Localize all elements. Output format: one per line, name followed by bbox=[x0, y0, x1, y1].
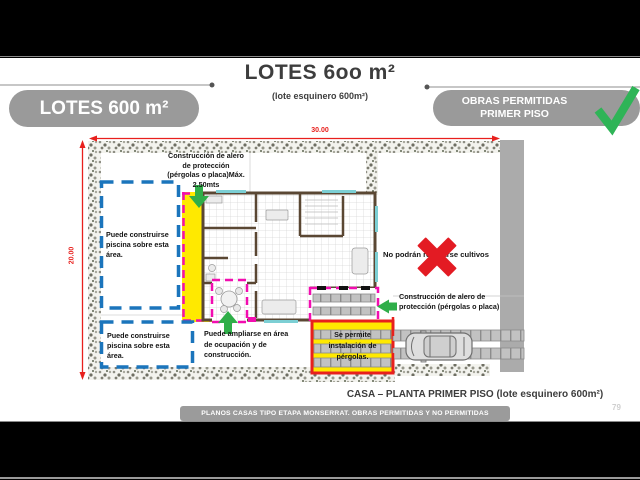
obras-permitidas-badge: OBRAS PERMITIDAS PRIMER PISO bbox=[433, 90, 640, 126]
dimension-height-label: 20.00 bbox=[69, 236, 76, 276]
dimension-width-label: 30.00 bbox=[295, 127, 345, 134]
annotation-alero-top: Construcción de alero de protección (pér… bbox=[158, 151, 254, 189]
annotation-pergolas-allowed: Se permite instalación de pérgolas. bbox=[314, 329, 391, 362]
check-icon bbox=[592, 84, 640, 134]
top-divider bbox=[0, 56, 640, 57]
annotation-pool-area-2: Puede construirse piscina sobre esta áre… bbox=[107, 331, 189, 361]
bottom-divider bbox=[0, 421, 640, 422]
page-number: 79 bbox=[612, 403, 621, 412]
footer-banner: PLANOS CASAS TIPO ETAPA MONSERRAT. OBRAS… bbox=[180, 406, 510, 421]
page-title: LOTES 6oo m² bbox=[235, 61, 405, 85]
annotation-alero-right: Construcción de alero de protección (pér… bbox=[399, 292, 511, 312]
red-x-icon bbox=[409, 229, 465, 285]
annotation-pool-area-1: Puede construirse piscina sobre esta áre… bbox=[106, 230, 182, 260]
obras-badge-line2: PRIMER PISO bbox=[441, 108, 588, 121]
obras-badge-line1: OBRAS PERMITIDAS bbox=[441, 95, 588, 108]
obras-badge-text: OBRAS PERMITIDAS PRIMER PISO bbox=[441, 95, 588, 121]
height-dimension-line bbox=[80, 140, 86, 380]
page-subtitle: (lote esquinero 600m²) bbox=[235, 91, 405, 101]
pergola-existing-area bbox=[310, 286, 378, 321]
arrow-left-icon bbox=[377, 300, 397, 314]
lotes-badge: LOTES 600 m² bbox=[9, 90, 199, 127]
plan-caption: CASA – PLANTA PRIMER PISO (lote esquiner… bbox=[344, 389, 606, 400]
car-icon bbox=[406, 331, 472, 362]
annotation-expansion: Puede ampliarse en área de ocupación y d… bbox=[204, 329, 306, 361]
slide: LOTES 6oo m² (lote esquinero 600m²) LOTE… bbox=[0, 0, 640, 480]
width-dimension-line bbox=[89, 136, 500, 142]
screen-edge-line bbox=[0, 477, 640, 479]
